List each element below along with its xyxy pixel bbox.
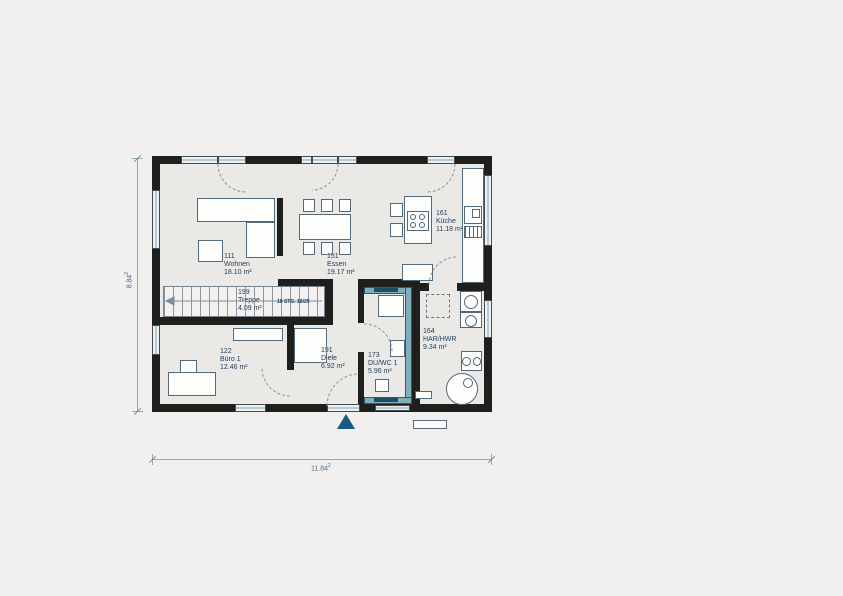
installation-wall-label-top — [374, 288, 398, 292]
wall-bottom-2 — [266, 404, 327, 412]
dimension-line-width — [152, 459, 492, 461]
washing-machine-drum — [464, 295, 478, 309]
wall-bottom-4 — [412, 404, 492, 412]
floorplan-canvas: 111 Wohnen 18.10 m² 151 Essen 19.17 m² 1… — [0, 0, 843, 596]
wall-left-1 — [152, 156, 160, 190]
room-number: 122 — [220, 348, 248, 356]
kitchen-sink — [464, 206, 482, 224]
cooktop-burner — [419, 214, 425, 220]
cooktop — [407, 211, 429, 231]
room-area: 4.09 m² — [238, 305, 262, 313]
terrace-door-wohnen — [218, 156, 246, 164]
dining-chair — [303, 242, 315, 255]
dimension-sup: 2 — [124, 272, 130, 275]
window-essen-right — [338, 156, 357, 164]
washing-machine — [460, 291, 482, 312]
wall-kueche-har-1 — [412, 283, 429, 291]
bar-stool — [390, 203, 403, 217]
dimension-value: 11.84 — [311, 465, 328, 472]
coffee-table — [198, 240, 223, 262]
room-label-duwc: 173 DU/WC 1 5.96 m² — [368, 352, 398, 376]
radiator — [415, 391, 432, 399]
sideboard-essen — [402, 264, 433, 281]
utility-appliance — [461, 351, 482, 371]
dining-chair — [321, 199, 333, 212]
wall-kueche-har-2 — [457, 283, 492, 291]
stair-steps-note: 18 STG. 18/25 — [277, 300, 310, 305]
wall-bath-har — [412, 287, 420, 404]
terrace-door-essen — [312, 156, 338, 164]
window-har-right — [484, 300, 492, 338]
room-area: 12.46 m² — [220, 364, 248, 372]
cooktop-burner — [419, 222, 425, 228]
dimension-sup: 2 — [328, 463, 331, 469]
room-number: 164 — [423, 328, 456, 336]
desk — [168, 372, 216, 396]
shower — [378, 295, 404, 317]
dining-chair — [303, 199, 315, 212]
entrance-arrow-icon — [337, 414, 355, 429]
room-number: 161 — [436, 210, 463, 218]
stair-steps-text: 18 STG. 18/25 — [277, 299, 310, 305]
room-name: Essen — [327, 261, 355, 269]
room-area: 11.18 m² — [436, 226, 463, 234]
room-area: 18.10 m² — [224, 269, 252, 277]
window-buero-bottom — [235, 404, 266, 412]
boiler-detail — [463, 378, 473, 388]
dining-chair — [339, 199, 351, 212]
bar-stool — [390, 223, 403, 237]
wc-toilet — [375, 379, 389, 392]
wall-right-2 — [484, 246, 492, 300]
window-wohnen-left — [152, 190, 160, 249]
boiler-tank — [446, 373, 478, 405]
room-label-essen: 151 Essen 19.17 m² — [327, 253, 355, 277]
appliance-dial — [462, 357, 471, 366]
wall-stair-right — [325, 279, 333, 325]
sideboard-buero — [233, 328, 283, 341]
cooktop-burner — [410, 214, 416, 220]
room-name: Küche — [436, 218, 463, 226]
room-name: Diele — [321, 355, 345, 363]
room-name: DU/WC 1 — [368, 360, 398, 368]
room-label-kueche: 161 Küche 11.18 m² — [436, 210, 463, 234]
room-label-treppe: 199 Treppe 4.09 m² — [238, 289, 262, 313]
wall-top-2 — [246, 156, 301, 164]
room-number: 191 — [321, 347, 345, 355]
wall-buero-diele — [287, 325, 294, 370]
wall-wohnen-buero — [160, 317, 330, 325]
dimension-width-label: 11.842 — [311, 463, 331, 472]
dryer — [460, 312, 482, 328]
tv-sideboard — [277, 198, 283, 256]
window-essen-left — [301, 156, 312, 164]
desk-chair — [180, 360, 197, 373]
dimension-height-label: 8.842 — [124, 272, 133, 288]
room-name: Treppe — [238, 297, 262, 305]
room-area: 19.17 m² — [327, 269, 355, 277]
room-number: 173 — [368, 352, 398, 360]
entrance-door — [327, 404, 360, 412]
room-label-har: 164 HAR/HWR 9.34 m² — [423, 328, 456, 352]
dimension-value: 8.84 — [126, 275, 133, 289]
sink-drainer — [464, 226, 482, 238]
window-duwc-bottom — [375, 405, 410, 411]
sink-basin — [472, 209, 480, 218]
wall-left-2 — [152, 249, 160, 325]
cooktop-burner — [410, 222, 416, 228]
dining-table — [299, 214, 351, 240]
room-name: HAR/HWR — [423, 336, 456, 344]
room-area: 9.34 m² — [423, 344, 456, 352]
window-buero-left — [152, 325, 160, 355]
wall-bottom-1 — [152, 404, 235, 412]
room-name: Wohnen — [224, 261, 252, 269]
dryer-drum — [465, 315, 477, 327]
window-kueche-right — [484, 175, 492, 246]
wall-right-3 — [484, 338, 492, 412]
wall-top-3 — [357, 156, 427, 164]
room-number: 111 — [224, 253, 252, 261]
appliance-dial — [473, 357, 482, 366]
room-label-wohnen: 111 Wohnen 18.10 m² — [224, 253, 252, 277]
room-number: 199 — [238, 289, 262, 297]
room-name: Büro 1 — [220, 356, 248, 364]
room-label-buero: 122 Büro 1 12.46 m² — [220, 348, 248, 372]
installation-wall-right — [405, 287, 412, 404]
window-wohnen-top — [181, 156, 218, 164]
terrace-door-kueche — [427, 156, 455, 164]
room-label-diele: 191 Diele 6.92 m² — [321, 347, 345, 371]
wall-right-1 — [484, 156, 492, 175]
ceiling-opening-dashed — [426, 294, 450, 318]
room-area: 5.96 m² — [368, 368, 398, 376]
doormat — [413, 420, 447, 429]
sofa-main — [197, 198, 275, 222]
room-area: 6.92 m² — [321, 363, 345, 371]
dimension-line-height — [137, 158, 139, 412]
installation-wall-label-bottom — [374, 398, 398, 402]
room-number: 151 — [327, 253, 355, 261]
